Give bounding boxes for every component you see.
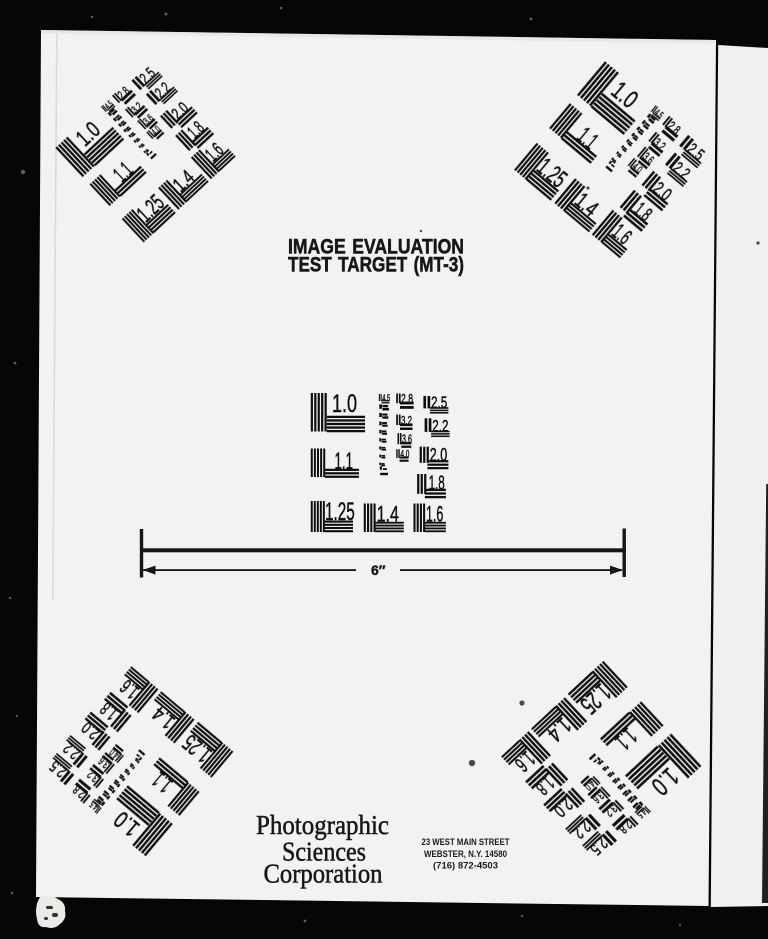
svg-text:Photographic: Photographic bbox=[256, 810, 389, 840]
svg-text:Corporation: Corporation bbox=[264, 859, 383, 889]
svg-text:WEBSTER, N.Y. 14580: WEBSTER, N.Y. 14580 bbox=[424, 849, 507, 860]
svg-text:(716) 872-4503: (716) 872-4503 bbox=[433, 861, 498, 872]
svg-text:6″: 6″ bbox=[371, 562, 386, 578]
svg-text:TEST TARGET (MT-3): TEST TARGET (MT-3) bbox=[288, 252, 464, 276]
svg-text:23 WEST MAIN STREET: 23 WEST MAIN STREET bbox=[422, 837, 510, 848]
